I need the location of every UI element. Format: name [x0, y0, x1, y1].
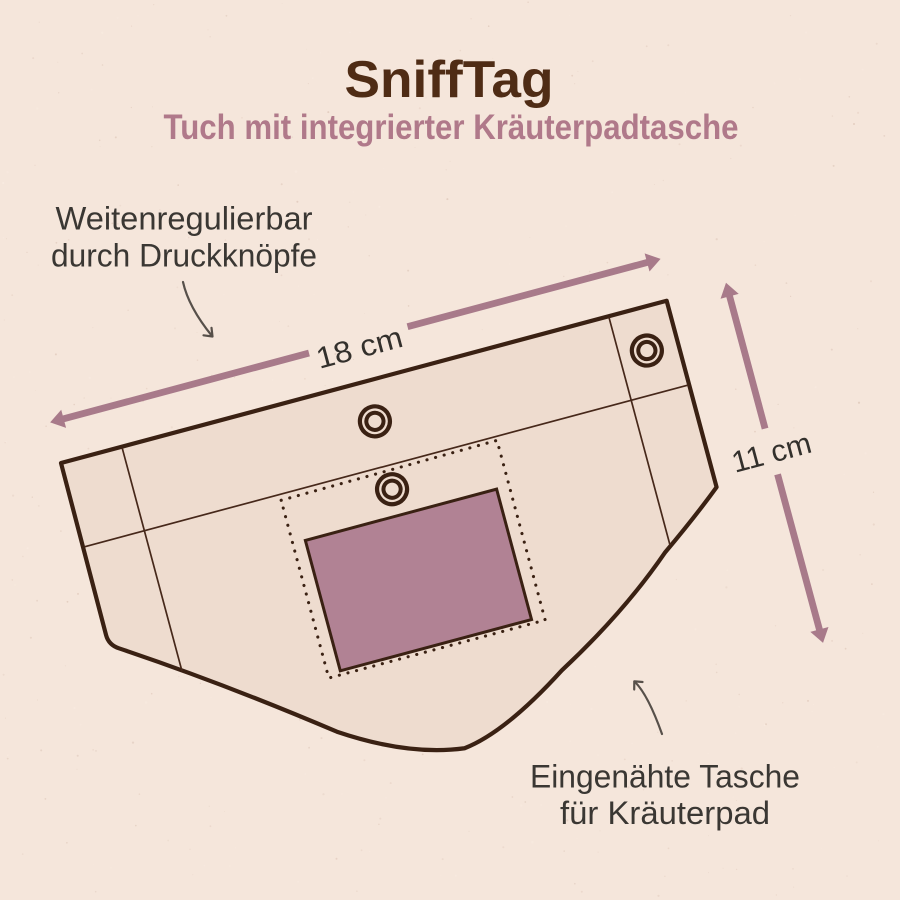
svg-text:durch Druckknöpfe: durch Druckknöpfe — [51, 238, 317, 274]
svg-text:Eingenähte Tasche: Eingenähte Tasche — [530, 759, 800, 795]
svg-text:SniffTag: SniffTag — [345, 51, 554, 109]
svg-text:Tuch mit integrierter Kräuterp: Tuch mit integrierter Kräuterpadtasche — [164, 108, 739, 147]
svg-text:für Kräuterpad: für Kräuterpad — [560, 795, 770, 831]
svg-text:Weitenregulierbar: Weitenregulierbar — [56, 201, 313, 237]
